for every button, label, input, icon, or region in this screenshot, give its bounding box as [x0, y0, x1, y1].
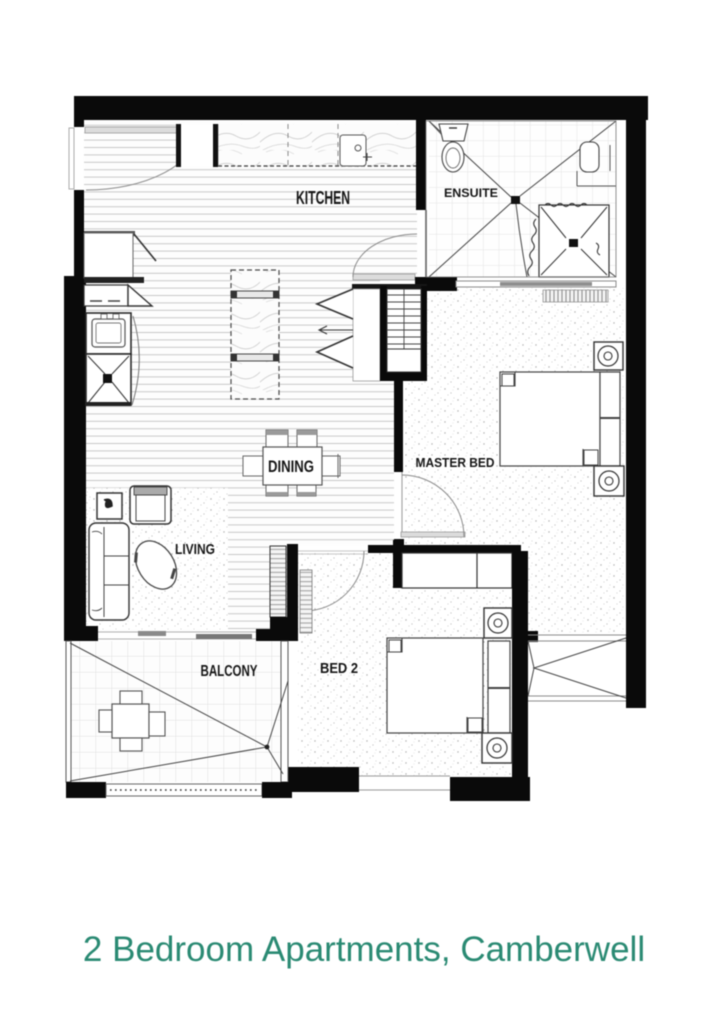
svg-text:BED 2: BED 2	[320, 660, 358, 677]
svg-text:MASTER BED: MASTER BED	[416, 455, 495, 470]
svg-text:KITCHEN: KITCHEN	[296, 188, 350, 208]
svg-text:DINING: DINING	[268, 457, 314, 476]
svg-text:ENSUITE: ENSUITE	[444, 186, 498, 200]
svg-text:BALCONY: BALCONY	[201, 663, 258, 680]
svg-text:LIVING: LIVING	[175, 541, 215, 558]
